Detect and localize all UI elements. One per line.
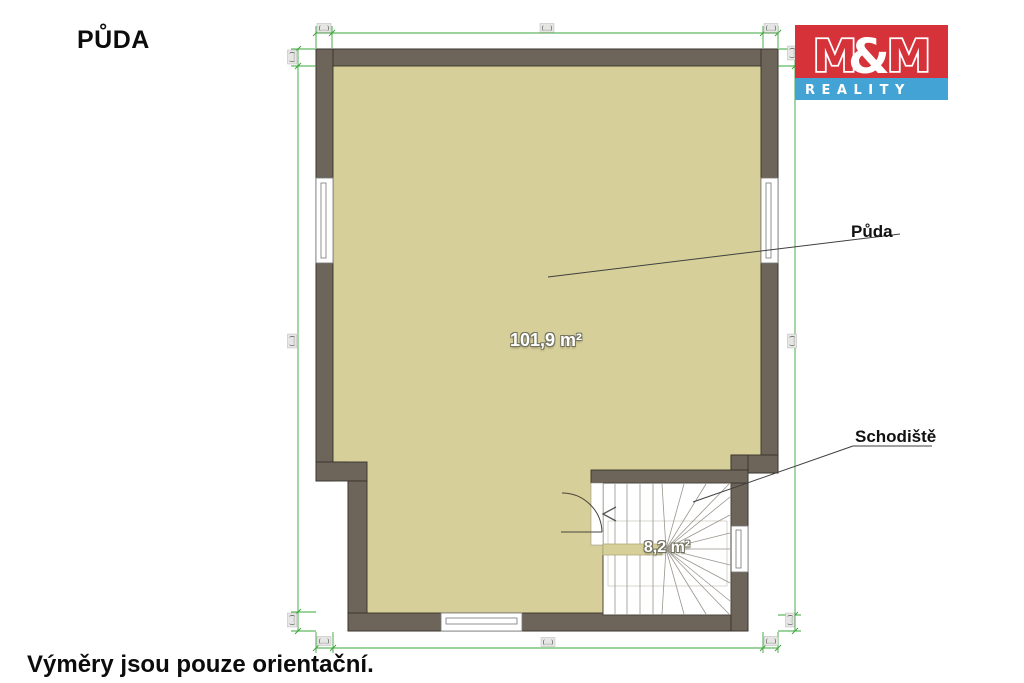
- dim-label: (…): [786, 613, 795, 627]
- dim-label: (…): [288, 50, 297, 64]
- dim-label: (…): [764, 637, 778, 646]
- stair-callout-label: Schodiště: [855, 427, 936, 447]
- svg-text:(…): (…): [543, 640, 554, 647]
- dim-label: (…): [541, 638, 555, 647]
- dim-label: (…): [317, 24, 331, 33]
- svg-text:(…): (…): [290, 615, 297, 626]
- svg-text:(…): (…): [290, 52, 297, 63]
- stair-area-value: 8,2 m²: [634, 539, 700, 557]
- dim-label: (…): [317, 637, 331, 646]
- dim-label: (…): [540, 24, 554, 33]
- dim-label: (…): [788, 334, 797, 348]
- agency-logo: M M & REALITY: [795, 25, 948, 100]
- dim-label: (…): [288, 613, 297, 627]
- window-stair: [731, 526, 748, 572]
- svg-text:(…): (…): [542, 26, 553, 33]
- page-title: PŮDA: [77, 26, 150, 55]
- logo-ampersand: &: [848, 29, 890, 85]
- svg-text:(…): (…): [790, 336, 797, 347]
- svg-text:(…): (…): [290, 336, 297, 347]
- room-callout-label: Půda: [851, 222, 893, 242]
- wall-left-step: [316, 462, 367, 481]
- agency-logo-graphic: M M & REALITY: [795, 25, 948, 100]
- svg-text:(…): (…): [766, 639, 777, 646]
- window-left: [316, 178, 333, 263]
- wall-stair-top: [591, 470, 748, 483]
- svg-text:(…): (…): [319, 26, 330, 33]
- svg-text:(…): (…): [788, 615, 795, 626]
- logo-m-right: M: [887, 31, 931, 82]
- window-bottom: [441, 613, 522, 631]
- svg-text:(…): (…): [766, 26, 777, 33]
- footer-disclaimer: Výměry jsou pouze orientační.: [27, 651, 374, 679]
- dim-label: (…): [764, 24, 778, 33]
- wall-left-upper: [316, 49, 333, 481]
- dim-label: (…): [288, 334, 297, 348]
- logo-reality-text: REALITY: [805, 83, 911, 98]
- wall-bottom: [348, 613, 748, 631]
- wall-top: [316, 49, 778, 66]
- room-area-value: 101,9 m²: [496, 330, 596, 351]
- wall-left-lower: [348, 481, 367, 631]
- floorplan-page: (…) (…) (…) (…) (…) (…) (…) (…): [0, 0, 1024, 683]
- svg-text:(…): (…): [319, 639, 330, 646]
